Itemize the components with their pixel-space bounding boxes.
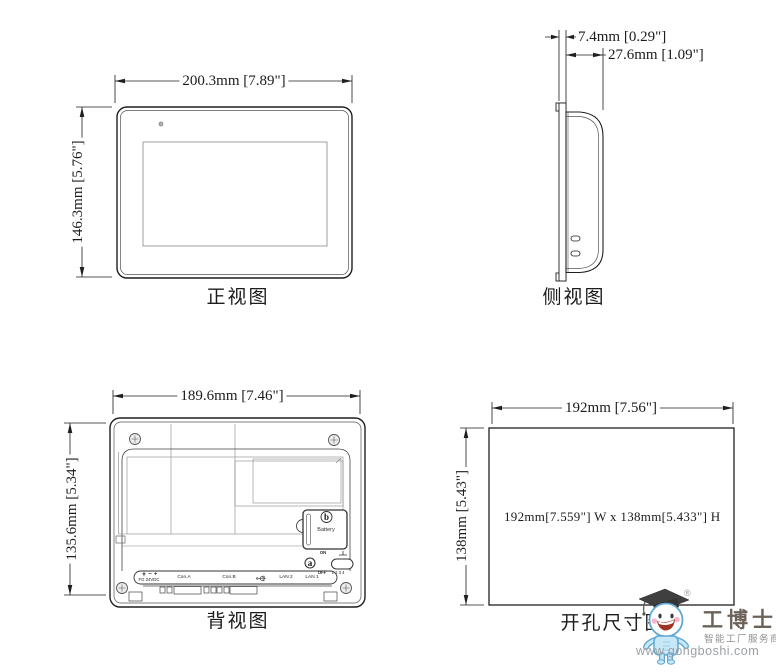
- port-label-con-a: Con.A: [172, 576, 196, 581]
- drawing-linework: [0, 0, 776, 672]
- screw-icon: [329, 435, 340, 446]
- side-bezel-depth-dimension: 7.4mm [0.29"]: [578, 29, 666, 45]
- dsub-connector: [230, 587, 257, 595]
- cutout-size-note: 192mm[7.559"] W x 138mm[5.433"] H: [504, 509, 720, 525]
- dip-switch-on-label: ON: [317, 551, 329, 555]
- dip-switch-numbers: 1 2 3 4: [327, 571, 349, 575]
- back-view-title: 背视图: [206, 612, 269, 632]
- back-width-dimension: 189.6mm [7.46"]: [177, 388, 286, 404]
- side-view-title: 侧视图: [542, 288, 605, 308]
- terminal-label: FG 24VDC: [135, 578, 163, 582]
- battery-key-letter: b: [321, 513, 332, 522]
- cutout-height-dimension: 138mm [5.43"]: [454, 467, 470, 565]
- mounting-foot: [129, 592, 142, 601]
- mounting-foot: [324, 592, 337, 601]
- back-height-dimension: 135.6mm [5.34"]: [64, 454, 80, 563]
- front-led-indicator: [159, 122, 163, 126]
- front-width-dimension: 200.3mm [7.89"]: [179, 73, 288, 89]
- dip-switch-body: [332, 559, 354, 569]
- front-height-dimension: 146.3mm [5.76"]: [70, 137, 86, 246]
- port-label-lan1: LAN 1: [301, 576, 323, 581]
- technical-drawing-page: 200.3mm [7.89"] 146.3mm [5.76"] 正视图 7.4m…: [0, 0, 776, 672]
- dip-switch-key-letter: a: [305, 559, 316, 568]
- battery-label: Battery: [306, 528, 346, 534]
- cutout-view-title: 开孔尺寸图: [560, 614, 665, 634]
- side-profile-outline: [556, 103, 603, 281]
- screw-icon: [117, 583, 128, 594]
- side-total-depth-dimension: 27.6mm [1.09"]: [608, 47, 704, 63]
- front-panel-outline: [117, 107, 352, 278]
- front-view-title: 正视图: [206, 288, 269, 308]
- port-label-lan2: LAN 2: [275, 576, 297, 581]
- side-bezel-plate: [559, 103, 566, 281]
- cutout-width-dimension: 192mm [7.56"]: [562, 400, 660, 416]
- screw-icon: [130, 434, 141, 445]
- side-body: [566, 112, 603, 273]
- dsub-connector: [174, 587, 201, 595]
- screw-icon: [341, 583, 352, 594]
- port-label-con-b: Con.B: [217, 576, 241, 581]
